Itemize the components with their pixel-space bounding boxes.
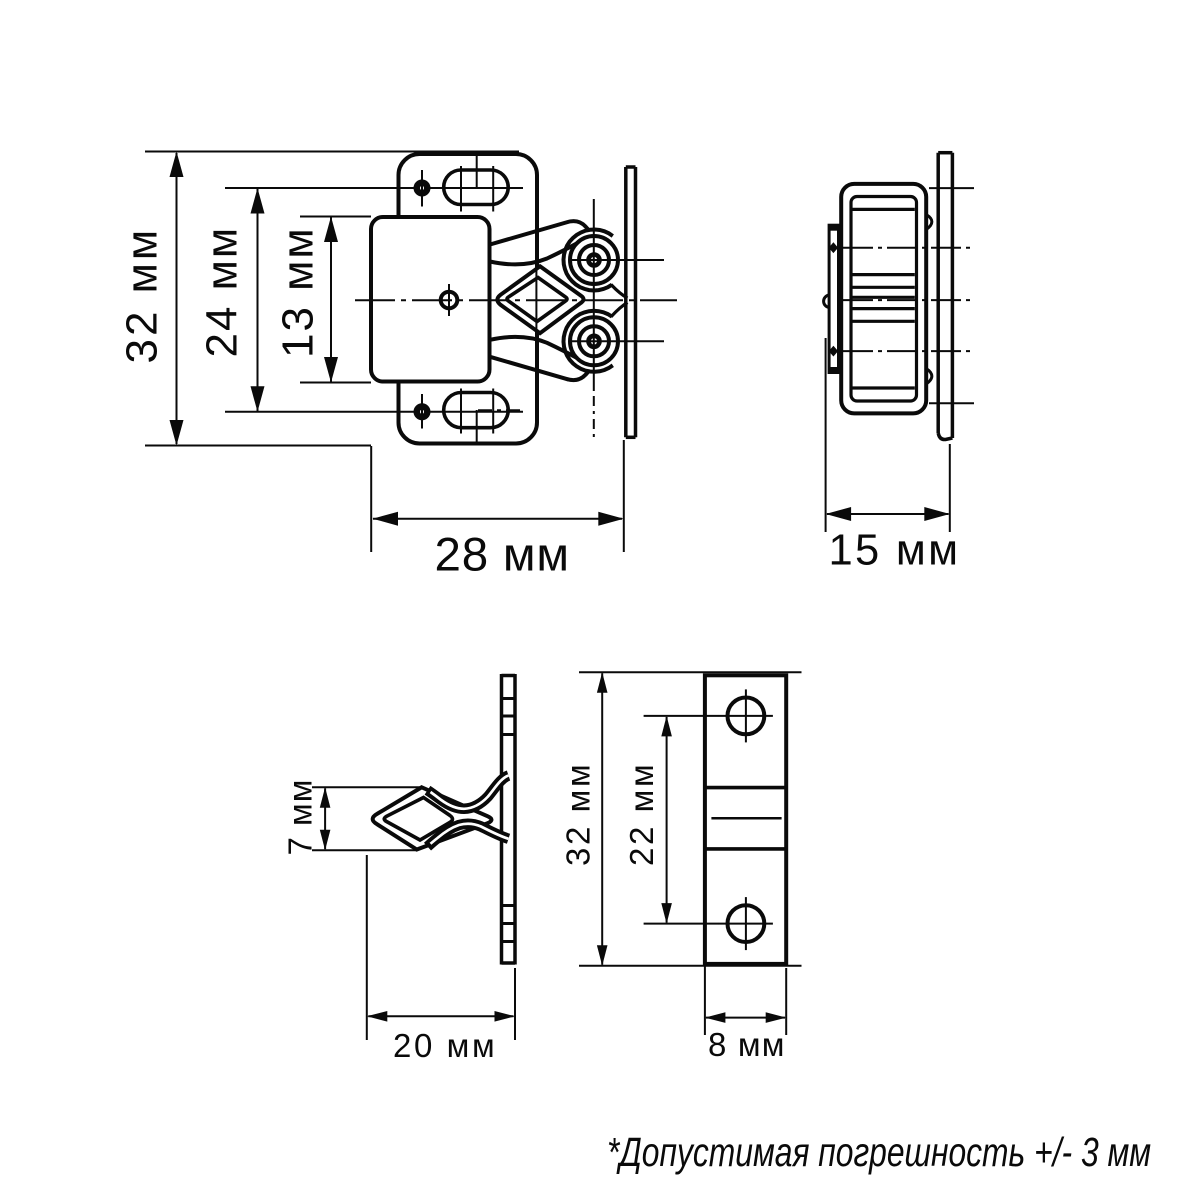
svg-text:24 мм: 24 мм [198, 226, 247, 358]
svg-text:28 мм: 28 мм [435, 529, 570, 582]
svg-text:32 мм: 32 мм [118, 227, 167, 364]
svg-text:*Допустимая погрешность +/- 3: *Допустимая погрешность +/- 3 мм [607, 1129, 1151, 1175]
svg-text:7 мм: 7 мм [282, 779, 319, 856]
svg-text:22 мм: 22 мм [623, 762, 660, 866]
svg-text:20 мм: 20 мм [393, 1027, 497, 1064]
svg-text:32 мм: 32 мм [560, 762, 597, 866]
svg-text:13 мм: 13 мм [274, 226, 323, 358]
svg-text:8 мм: 8 мм [708, 1026, 786, 1063]
svg-text:15 мм: 15 мм [829, 527, 961, 575]
